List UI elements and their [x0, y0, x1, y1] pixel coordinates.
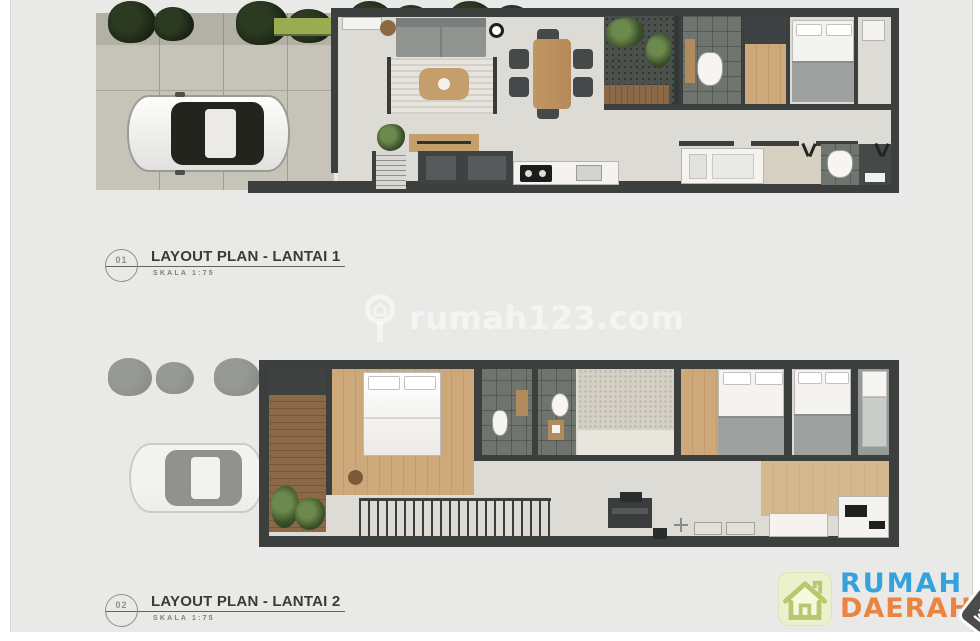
burner — [525, 170, 532, 177]
dining-chair — [573, 77, 593, 97]
stairs — [372, 151, 406, 189]
car-roof — [191, 457, 220, 499]
plan-number: 01 — [105, 255, 138, 265]
watermark-text: rumah123.com — [409, 299, 685, 337]
floor-item — [653, 528, 667, 539]
door-swing — [875, 143, 888, 156]
wardrobe-floor — [745, 44, 788, 106]
car-top-view — [127, 95, 290, 172]
single-room-floor — [858, 369, 889, 455]
plan-title: LAYOUT PLAN - LANTAI 2 — [151, 593, 340, 610]
console-table — [409, 134, 479, 152]
tree-icon — [214, 358, 260, 396]
car-mirror — [175, 92, 185, 97]
tree-icon — [108, 1, 156, 43]
low-table — [694, 522, 722, 535]
floorplan-lantai-2 — [96, 358, 899, 550]
utility-item — [865, 173, 885, 182]
rumah123-watermark: rumah123.com — [359, 292, 685, 344]
ceiling-fan-symbol — [674, 518, 688, 532]
wall-segment — [786, 16, 790, 106]
dining-table — [533, 39, 571, 109]
coffee-table — [419, 68, 469, 100]
keyboard — [612, 508, 648, 514]
cabinet — [862, 20, 885, 41]
tree-icon — [156, 362, 194, 394]
duvet-fold — [364, 417, 440, 419]
pillow — [826, 24, 852, 36]
car-roof — [205, 109, 236, 158]
laundry-sink — [712, 154, 754, 179]
sofa — [396, 18, 486, 58]
plan-number-circle — [105, 594, 138, 627]
pillow — [798, 372, 822, 384]
wall-segment — [604, 104, 899, 110]
monitor — [620, 492, 642, 502]
service-bathroom — [821, 144, 859, 185]
dining-chair — [509, 77, 529, 97]
stove — [520, 165, 552, 182]
wall-segment — [259, 360, 269, 547]
tree-icon — [154, 7, 194, 41]
dining-chair — [573, 49, 593, 69]
car-mirror — [175, 170, 185, 175]
wardrobe-cabinet — [745, 16, 788, 44]
pillow — [825, 372, 849, 384]
single-bed-pillow-end — [862, 371, 887, 397]
shoe-cabinet — [342, 17, 382, 30]
wall-segment — [891, 8, 899, 193]
blanket — [718, 416, 784, 456]
plan-scale: SKALA 1:75 — [153, 615, 215, 622]
bath-vanity — [548, 420, 564, 440]
wall-segment — [674, 369, 681, 455]
wall-segment — [532, 369, 538, 455]
logo-wordmark: RUMAH DAERAH — [840, 572, 972, 622]
magnifier-house-icon — [359, 292, 401, 344]
console-decor — [417, 141, 471, 144]
burner — [539, 170, 546, 177]
bath-vanity — [516, 390, 528, 416]
side-table — [380, 20, 396, 36]
wall-segment — [851, 369, 858, 455]
appliance — [869, 521, 885, 529]
bed-double — [792, 20, 854, 102]
under-stair-storage — [418, 151, 513, 185]
planter-strip — [274, 18, 331, 36]
bathrooms-block — [482, 369, 576, 455]
title-rule — [105, 611, 345, 613]
plan1-title-block: 01 LAYOUT PLAN - LANTAI 1 SKALA 1:75 — [105, 246, 347, 290]
house-icon — [778, 572, 832, 626]
toilet — [827, 150, 853, 178]
floorplan-lantai-1 — [96, 3, 899, 195]
wall-segment — [784, 369, 792, 455]
plan-title: LAYOUT PLAN - LANTAI 1 — [151, 248, 340, 265]
sofa-backrest — [396, 18, 486, 27]
plan2-title-block: 02 LAYOUT PLAN - LANTAI 2 SKALA 1:75 — [105, 591, 347, 635]
plan-scale: SKALA 1:75 — [153, 270, 215, 277]
table-decor — [438, 78, 450, 90]
storage-inset — [426, 156, 456, 180]
single-bed — [862, 397, 887, 447]
washer — [689, 154, 707, 179]
blanket — [794, 414, 851, 461]
plan-number-circle — [105, 249, 138, 282]
toilet — [697, 52, 723, 86]
plan-number: 02 — [105, 600, 138, 610]
appliance — [845, 505, 867, 517]
pillow — [755, 372, 783, 385]
dining-chair — [509, 49, 529, 69]
gravel-light-band — [578, 430, 674, 455]
wall-segment — [259, 360, 899, 369]
pillow — [404, 376, 436, 390]
void-railing — [359, 498, 551, 541]
screenshot-root: 01 LAYOUT PLAN - LANTAI 1 SKALA 1:75 rum… — [0, 0, 980, 641]
rumah-daerah-logo: RUMAH DAERAH .COM — [778, 572, 980, 634]
kitchen-sink — [576, 165, 602, 181]
bed-master — [363, 372, 441, 456]
bedroom2-floor — [681, 369, 718, 455]
bed-3 — [794, 369, 851, 461]
courtyard-deck — [604, 85, 669, 105]
front-fence-wall — [331, 11, 338, 173]
paving-joint-line — [96, 90, 334, 91]
plant-pot — [348, 470, 363, 485]
bathroom-1 — [683, 16, 741, 106]
sofa-cushion-gap — [440, 27, 442, 58]
courtyard-plant — [646, 34, 672, 68]
toilet — [551, 393, 569, 417]
bath-vanity — [685, 39, 695, 83]
study-desk — [608, 498, 652, 528]
wall-segment — [259, 536, 899, 547]
laundry-counter — [681, 148, 764, 184]
ghost-car-top-view — [129, 443, 264, 513]
pantry-table — [769, 513, 828, 537]
listing-photo-area: 01 LAYOUT PLAN - LANTAI 1 SKALA 1:75 rum… — [10, 0, 973, 632]
toilet — [492, 410, 508, 436]
bed-2 — [718, 369, 784, 455]
wall-segment — [889, 360, 899, 547]
courtyard-plant — [606, 18, 644, 48]
blanket — [792, 61, 854, 102]
gravel-court — [578, 369, 674, 455]
pillow — [368, 376, 400, 390]
wall-segment — [679, 141, 734, 146]
low-table — [726, 522, 755, 535]
wall-segment — [474, 369, 482, 461]
title-rule — [105, 266, 345, 268]
logo-word-daerah: DAERAH — [840, 597, 972, 622]
kitchen-counter — [513, 161, 619, 185]
floor-lamp — [489, 23, 504, 38]
inner-courtyard — [604, 16, 679, 107]
sink — [552, 425, 560, 433]
storage-inset — [468, 156, 506, 180]
tree-icon — [108, 358, 152, 396]
door-swing — [802, 143, 815, 156]
pillow — [796, 24, 822, 36]
balcony-closet — [269, 369, 326, 395]
ghost-carport-below — [96, 358, 269, 536]
pillow — [723, 372, 751, 385]
kitchenette-counter — [838, 496, 889, 538]
